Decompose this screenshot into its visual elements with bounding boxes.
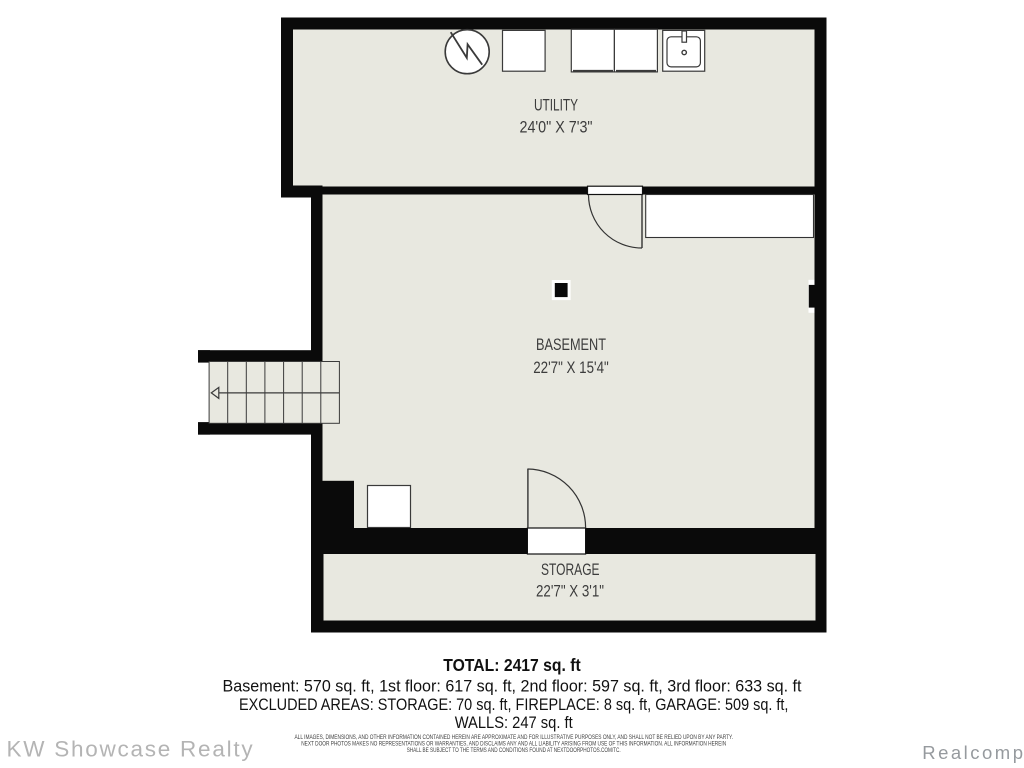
svg-text:UTILITY: UTILITY bbox=[534, 97, 578, 115]
svg-text:BASEMENT: BASEMENT bbox=[536, 336, 606, 354]
svg-text:WALLS: 247 sq. ft: WALLS: 247 sq. ft bbox=[455, 713, 573, 732]
svg-text:Realcomp: Realcomp bbox=[922, 742, 1024, 763]
svg-text:Basement: 570 sq. ft, 1st floo: Basement: 570 sq. ft, 1st floor: 617 sq.… bbox=[223, 676, 802, 695]
svg-text:24'0" X 7'3": 24'0" X 7'3" bbox=[520, 118, 593, 136]
svg-text:22'7" X 15'4": 22'7" X 15'4" bbox=[533, 359, 609, 377]
svg-text:EXCLUDED AREAS: STORAGE: 70 sq: EXCLUDED AREAS: STORAGE: 70 sq. ft, FIRE… bbox=[239, 695, 789, 714]
svg-text:SHALL BE SUBJECT TO THE TERMS: SHALL BE SUBJECT TO THE TERMS AND CONDIT… bbox=[407, 747, 621, 754]
svg-text:22'7" X 3'1": 22'7" X 3'1" bbox=[536, 583, 604, 601]
svg-text:KW Showcase Realty: KW Showcase Realty bbox=[7, 736, 255, 761]
svg-text:TOTAL: 2417 sq. ft: TOTAL: 2417 sq. ft bbox=[443, 655, 581, 675]
svg-text:STORAGE: STORAGE bbox=[541, 561, 600, 579]
